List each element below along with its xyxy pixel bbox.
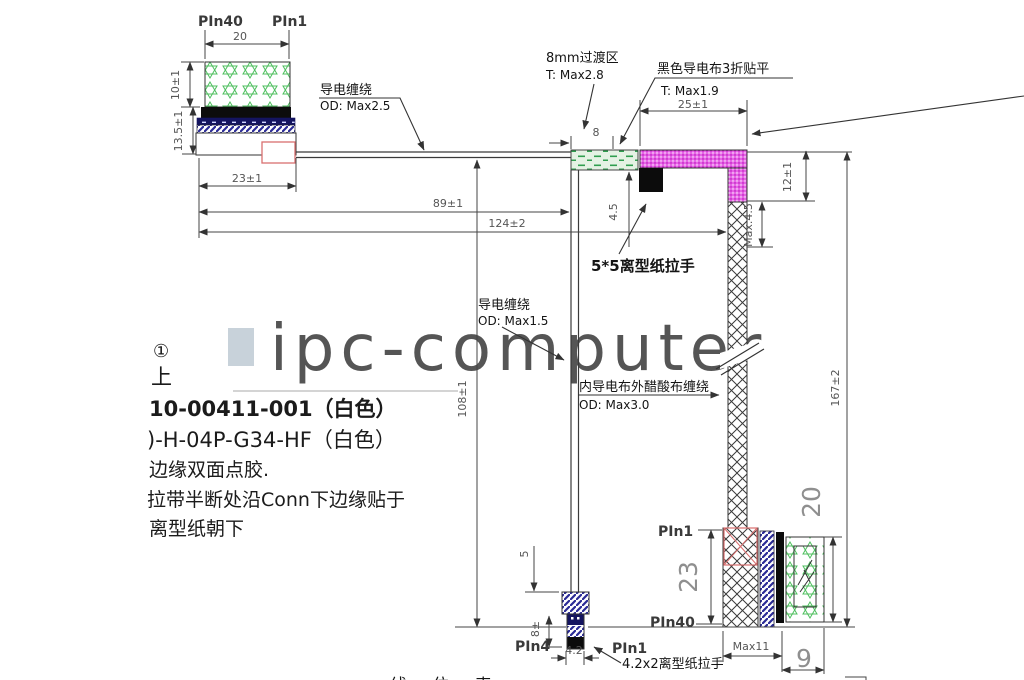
pull-tab-5x5-square (639, 168, 663, 192)
black-cloth-label: 黑色导电布3折贴平 (657, 61, 769, 77)
pin40-right-label: PIn40 (650, 615, 695, 631)
ext-lines-12 (747, 152, 852, 201)
dim-20: 20 (233, 30, 247, 43)
dim-23: 23±1 (232, 172, 262, 185)
pin-dot (577, 617, 580, 620)
pin1-right-label: PIn1 (658, 524, 693, 540)
dim-max45: Max.4.5 (742, 203, 755, 247)
red-marked-region (262, 142, 295, 163)
ext-lines-23 (199, 158, 296, 238)
leader-black-cloth-right (752, 96, 1024, 134)
black-bar (201, 107, 291, 118)
note-part-number-2: )-H-04P-G34-HF（白色） (147, 428, 396, 452)
ext-lines-10 (181, 62, 204, 107)
dim-89: 89±1 (433, 197, 463, 210)
watermark-square-icon (228, 328, 254, 366)
green-fabric-block (205, 62, 290, 107)
note-release-paper: 离型纸朝下 (149, 518, 244, 540)
fpc-cable-assembly-drawing: ipc-computer PIn40 PIn1 (0, 0, 1024, 680)
dim-135: 13.5±1 (172, 111, 185, 152)
green-fabric-block-right (786, 537, 824, 622)
transition-zone-strip (571, 150, 638, 170)
note-up: 上 (151, 365, 172, 389)
dim-right-23: 23 (674, 561, 703, 593)
dim-124: 124±2 (488, 217, 525, 230)
magenta-cloth-leg (728, 168, 747, 202)
dim-108: 108±1 (456, 380, 469, 417)
pin-dot (571, 617, 574, 620)
dim-45: 4.5 (607, 203, 620, 221)
acetate-value: OD: Max3.0 (579, 398, 649, 412)
wrap-top-label: 导电缠绕 (320, 82, 372, 98)
pin4-label: PIn4 (515, 639, 550, 655)
dim-tail8: 8± (529, 621, 542, 637)
dim-9: 9 (796, 644, 812, 673)
dim-5: 5 (518, 551, 531, 558)
acetate-label: 内导电布外醋酸布缠绕 (579, 379, 709, 395)
wrap-top-value: OD: Max2.5 (320, 99, 390, 113)
connector-head-block (562, 592, 589, 614)
crosshatch-column-wide (723, 528, 758, 627)
pull-tab-42-label: 4.2x2离型纸拉手 (622, 656, 724, 672)
dim-8: 8 (593, 126, 600, 139)
connector-top-left: PIn40 PIn1 (196, 14, 307, 163)
wire-table-title: 线 位 表 (390, 676, 502, 680)
hatch-band (567, 626, 584, 637)
dim-max11: Max11 (733, 640, 770, 653)
pull-tab-5x5-label: 5*5离型纸拉手 (591, 257, 695, 275)
note-part-number-1: 10-00411-001（白色） (149, 397, 397, 421)
dim-167: 167±2 (829, 369, 842, 406)
note-tape: 拉带半断处沿Conn下边缘贴于 (147, 489, 405, 511)
engineering-drawing-page: ipc-computer PIn40 PIn1 (0, 0, 1024, 680)
transition-value: T: Max2.8 (545, 68, 604, 82)
dim-10: 10±1 (169, 70, 182, 100)
dim-12: 12±1 (781, 162, 794, 192)
leader-pull-tab-5x5 (619, 204, 646, 254)
pin1-bottom-label: PIn1 (612, 641, 647, 657)
black-cloth-value: T: Max1.9 (660, 84, 719, 98)
pin-strip (197, 118, 295, 125)
blue-hatch-strip-right (760, 531, 774, 627)
pin40-label: PIn40 (198, 14, 243, 30)
dim-25: 25±1 (678, 98, 708, 111)
transition-label: 8mm过渡区 (546, 50, 619, 66)
note-glue: 边缘双面点胶. (149, 459, 269, 481)
dim-right-20: 20 (797, 486, 826, 518)
transition-and-cloth (571, 150, 747, 202)
black-strip-right (776, 532, 784, 623)
dim-42: 4.2 (565, 644, 583, 657)
wrap-mid-label: 导电缠绕 (478, 297, 530, 313)
leader-transition (584, 84, 594, 129)
navy-band (567, 614, 584, 625)
pin1-label: PIn1 (272, 14, 307, 30)
wrap-mid-value: OD: Max1.5 (478, 314, 548, 328)
magenta-cloth-bar (640, 150, 747, 168)
note-marker: ① (153, 341, 169, 362)
